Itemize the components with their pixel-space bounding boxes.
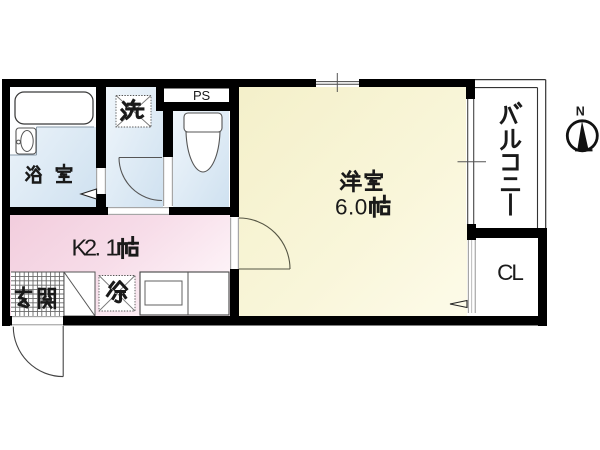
svg-text:6.0: 6.0 (335, 195, 368, 220)
svg-text:PS: PS (193, 88, 210, 103)
svg-text:1: 1 (106, 235, 119, 261)
svg-text:CL: CL (497, 260, 523, 285)
svg-text:N: N (576, 105, 585, 119)
svg-text:.: . (95, 235, 102, 261)
